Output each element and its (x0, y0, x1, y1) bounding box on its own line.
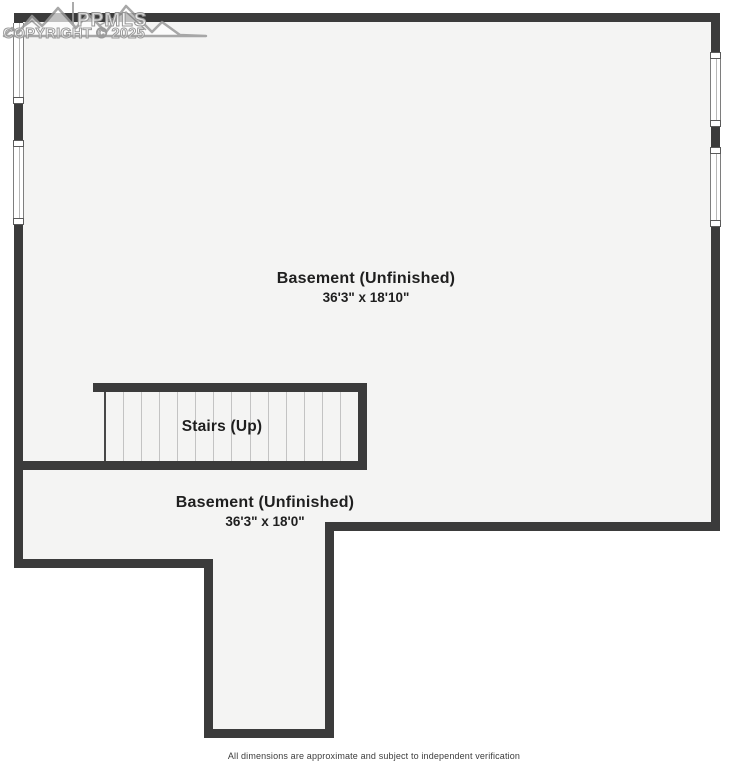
window-jamb-icon (710, 220, 721, 227)
window-symbol (710, 147, 721, 227)
floor-area-protrusion (204, 559, 334, 738)
room-dimensions: 36'3" x 18'10" (216, 290, 516, 305)
window-jamb-icon (13, 218, 24, 225)
disclaimer-text: All dimensions are approximate and subje… (14, 751, 734, 761)
window-jamb-icon (710, 147, 721, 154)
room-dimensions: 36'3" x 18'0" (115, 514, 415, 529)
window-symbol (13, 23, 24, 104)
top-wall (14, 13, 720, 22)
window-pane-icon (710, 59, 721, 120)
stairs-label-group: Stairs (Up) (72, 418, 372, 436)
window-jamb-icon (13, 97, 24, 104)
window-pane-icon (710, 154, 721, 220)
room-label-group-lower: Basement (Unfinished) 36'3" x 18'0" (115, 494, 415, 529)
protrusion-right-wall (325, 522, 334, 738)
window-jamb-icon (13, 140, 24, 147)
protrusion-bottom-wall (204, 729, 334, 738)
stairs-top-wall (93, 383, 367, 392)
stairs-label: Stairs (Up) (72, 418, 372, 436)
stairs-bottom-wall (14, 461, 367, 470)
protrusion-left-wall (204, 559, 213, 738)
room-title: Basement (Unfinished) (115, 494, 415, 512)
window-pane-icon (13, 23, 24, 97)
window-symbol (13, 140, 24, 225)
window-jamb-icon (710, 120, 721, 127)
room-label-group-upper: Basement (Unfinished) 36'3" x 18'10" (216, 270, 516, 305)
window-pane-icon (13, 147, 24, 218)
room-title: Basement (Unfinished) (216, 270, 516, 288)
window-symbol (710, 52, 721, 127)
window-jamb-icon (710, 52, 721, 59)
bottom-left-wall (14, 559, 213, 568)
